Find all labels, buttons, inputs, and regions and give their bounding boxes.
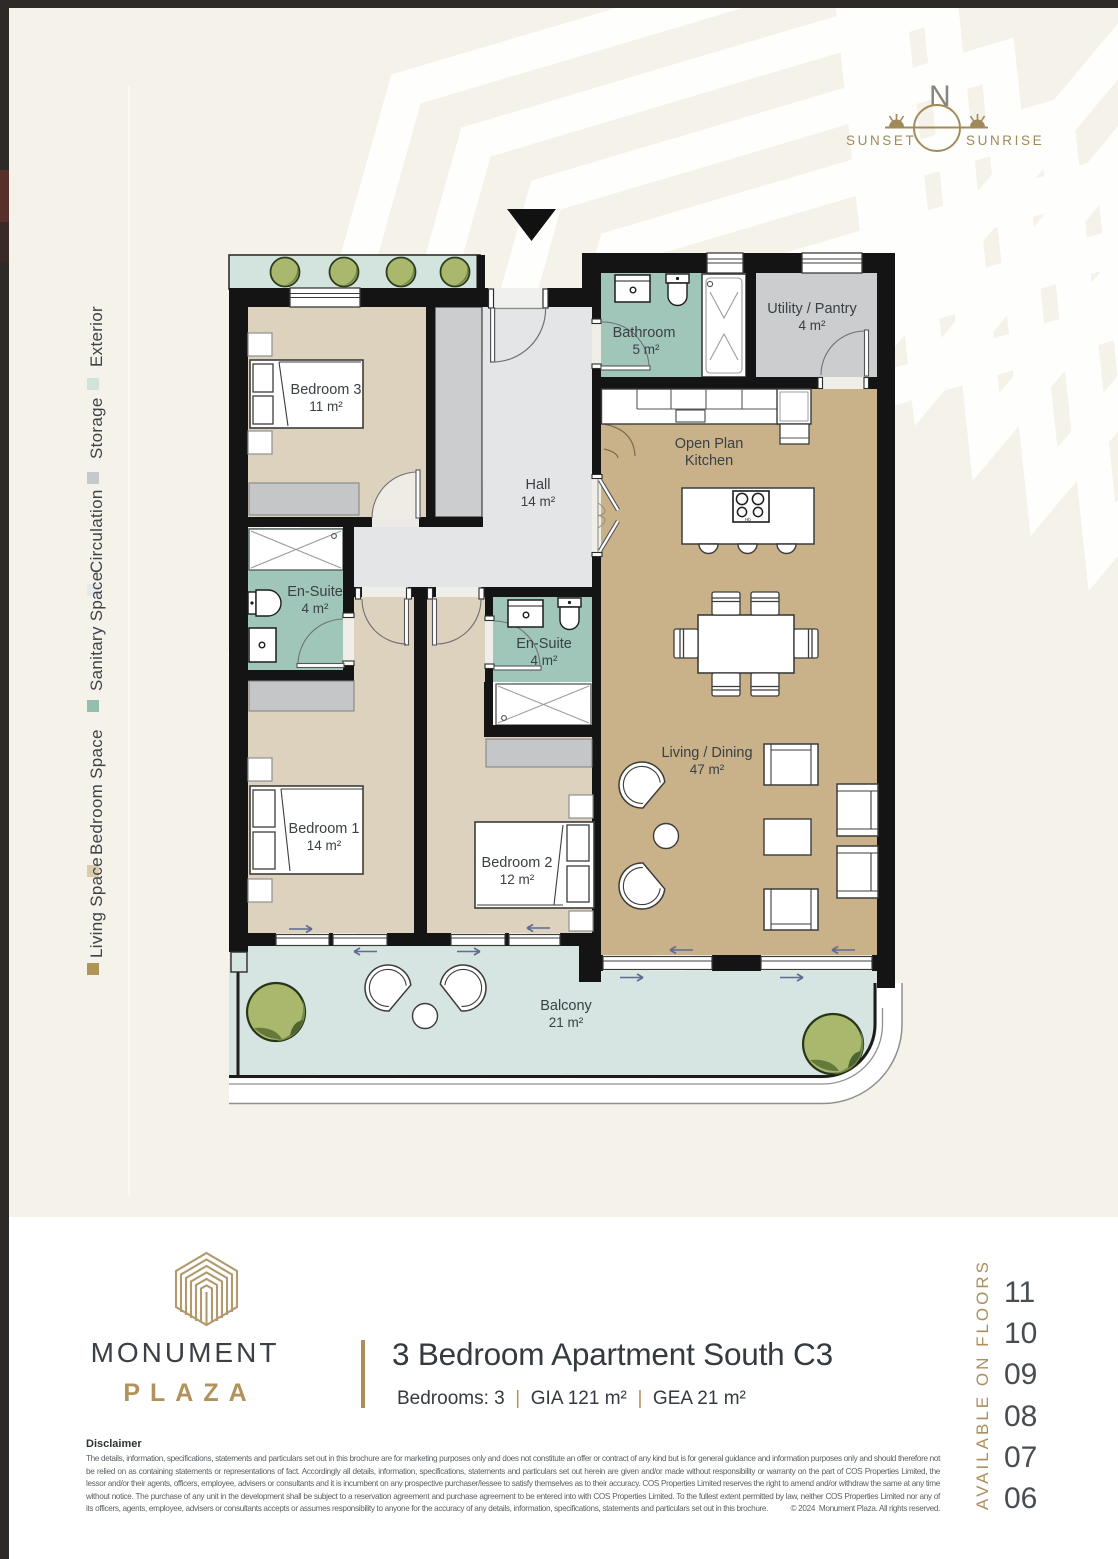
svg-text:Bedroom 2: Bedroom 2	[482, 855, 553, 871]
svg-text:En-Suite: En-Suite	[287, 584, 343, 600]
svg-text:Open Plan: Open Plan	[675, 436, 744, 452]
svg-text:4 m²: 4 m²	[531, 653, 559, 668]
svg-text:Hb: Hb	[745, 517, 751, 522]
svg-text:Bathroom: Bathroom	[613, 325, 676, 341]
svg-text:Bedroom 3: Bedroom 3	[291, 382, 362, 398]
svg-text:12 m²: 12 m²	[500, 872, 535, 887]
svg-text:Utility / Pantry: Utility / Pantry	[767, 301, 857, 317]
svg-text:21 m²: 21 m²	[549, 1015, 584, 1030]
svg-text:Kitchen: Kitchen	[685, 453, 733, 469]
svg-text:14 m²: 14 m²	[307, 838, 342, 853]
svg-text:Hall: Hall	[526, 477, 551, 493]
svg-text:En-Suite: En-Suite	[516, 636, 572, 652]
svg-text:Bedroom 1: Bedroom 1	[289, 821, 360, 837]
svg-text:Balcony: Balcony	[540, 998, 592, 1014]
svg-text:14 m²: 14 m²	[521, 494, 556, 509]
svg-text:4 m²: 4 m²	[799, 318, 827, 333]
svg-text:5 m²: 5 m²	[633, 342, 661, 357]
svg-text:4 m²: 4 m²	[302, 601, 330, 616]
svg-text:47 m²: 47 m²	[690, 762, 725, 777]
svg-text:Living / Dining: Living / Dining	[661, 745, 752, 761]
svg-text:11 m²: 11 m²	[309, 399, 343, 414]
